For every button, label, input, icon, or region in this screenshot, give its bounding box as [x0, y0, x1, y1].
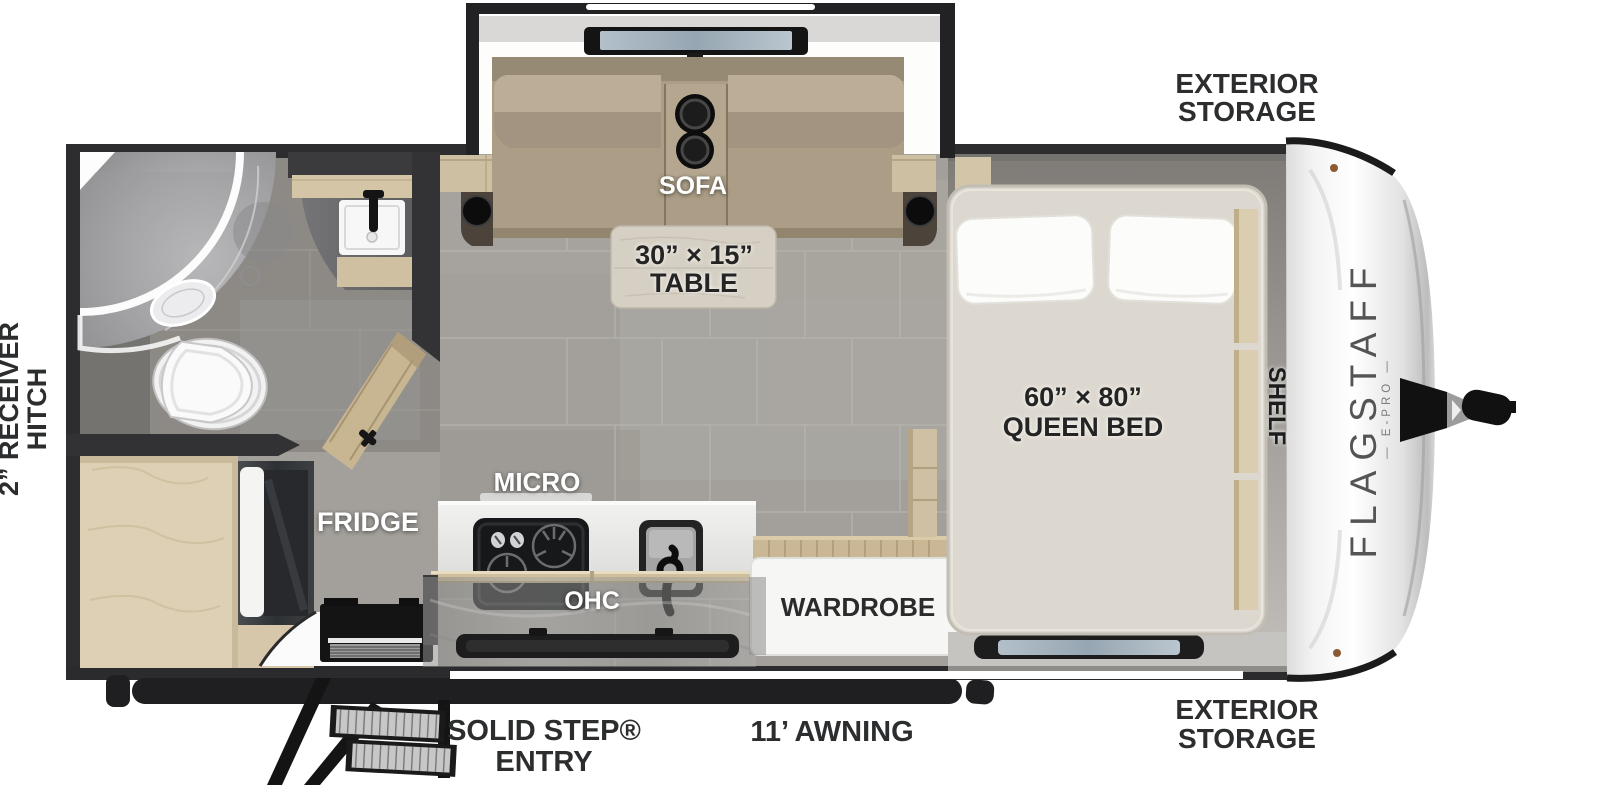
svg-text:SHELF: SHELF [1263, 367, 1290, 446]
svg-text:STORAGE: STORAGE [1178, 723, 1316, 754]
svg-text:FRIDGE: FRIDGE [317, 507, 419, 537]
svg-text:WARDROBE: WARDROBE [781, 592, 936, 622]
svg-text:60” × 80”: 60” × 80” [1024, 382, 1142, 412]
svg-text:STORAGE: STORAGE [1178, 96, 1316, 127]
svg-text:EXTERIOR: EXTERIOR [1175, 68, 1318, 99]
svg-text:— E-PRO —: — E-PRO — [1381, 357, 1393, 459]
svg-text:FLAGSTAFF: FLAGSTAFF [1343, 257, 1384, 558]
svg-text:30” × 15”: 30” × 15” [635, 240, 753, 270]
svg-text:EXTERIOR: EXTERIOR [1175, 694, 1318, 725]
svg-text:SOFA: SOFA [659, 172, 727, 200]
svg-text:ENTRY: ENTRY [495, 746, 592, 778]
svg-text:MICRO: MICRO [494, 467, 581, 497]
svg-text:11’ AWNING: 11’ AWNING [750, 716, 913, 748]
svg-text:QUEEN BED: QUEEN BED [1003, 412, 1164, 442]
svg-text:TABLE: TABLE [650, 268, 738, 298]
svg-text:HITCH: HITCH [22, 368, 52, 451]
svg-text:OHC: OHC [564, 587, 620, 615]
svg-text:SOLID STEP®: SOLID STEP® [447, 715, 641, 747]
svg-text:2” RECEIVER: 2” RECEIVER [0, 322, 24, 496]
